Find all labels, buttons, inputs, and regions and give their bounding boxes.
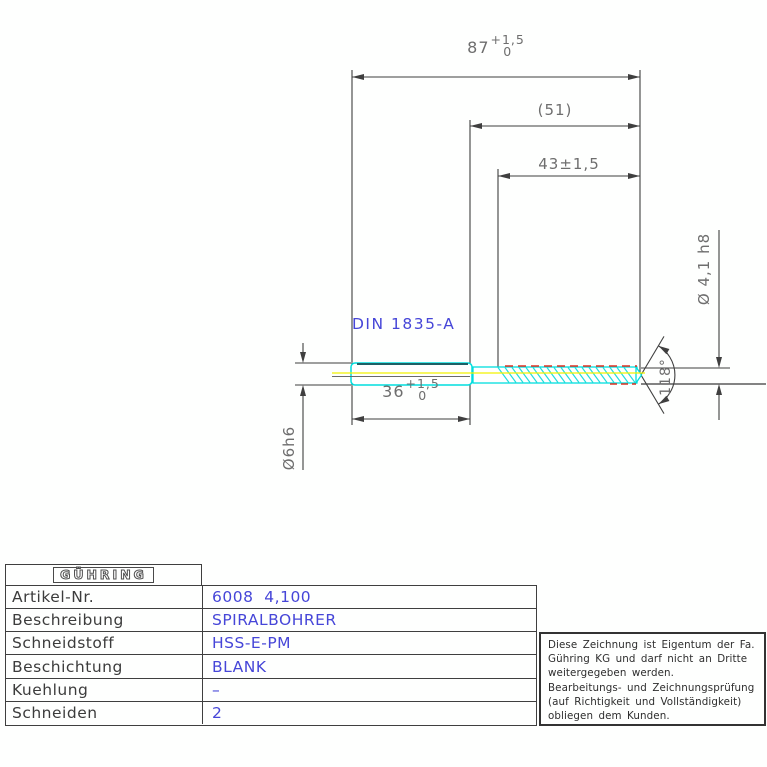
notice-line: Diese Zeichnung ist Eigentum der Fa. bbox=[548, 638, 757, 652]
notice-line: weitergegeben werden. bbox=[548, 666, 757, 680]
logo-cell: GÜHRING bbox=[5, 564, 202, 586]
table-row: Schneiden 2 bbox=[6, 702, 536, 724]
table-row: Artikel-Nr. 6008 4,100 bbox=[6, 586, 536, 609]
flute-hatch bbox=[498, 368, 635, 383]
dim-overall-value: 87 bbox=[467, 38, 489, 58]
dim-shank-value: 36 bbox=[382, 382, 404, 402]
row-value-kuehlung: – bbox=[203, 681, 536, 699]
titleblock-table: Artikel-Nr. 6008 4,100 Beschreibung SPIR… bbox=[5, 585, 537, 726]
dim-shank-diameter: Ø6h6 bbox=[280, 423, 298, 473]
table-row: Kuehlung – bbox=[6, 679, 536, 702]
logo-frame: GÜHRING bbox=[53, 567, 154, 583]
table-row: Beschreibung SPIRALBOHRER bbox=[6, 609, 536, 632]
notice-line: (auf Richtigkeit und Vollständigkeit) bbox=[548, 695, 757, 709]
table-row: Beschichtung BLANK bbox=[6, 655, 536, 678]
dim-point-angle: 118° bbox=[658, 357, 674, 397]
notice-line: Bearbeitungs- und Zeichnungsprüfung bbox=[548, 681, 757, 695]
row-label-schneidstoff: Schneidstoff bbox=[6, 632, 203, 654]
row-value-artikel: 6008 4,100 bbox=[203, 588, 536, 606]
cad-drawing-page: 87 +1,5 0 (51) 43±1,5 36 +1,5 0 DIN 1835… bbox=[0, 0, 767, 767]
dim-ref-length: (51) bbox=[470, 101, 640, 119]
ownership-notice: Diese Zeichnung ist Eigentum der Fa. Güh… bbox=[539, 632, 766, 726]
table-row: Schneidstoff HSS-E-PM bbox=[6, 632, 536, 655]
row-label-beschichtung: Beschichtung bbox=[6, 655, 203, 677]
shank-standard-label: DIN 1835-A bbox=[352, 315, 455, 333]
dim-overall-length: 87 +1,5 0 bbox=[352, 38, 640, 58]
dim-shank-tolerance: +1,5 0 bbox=[406, 378, 440, 401]
notice-line: Gühring KG und darf nicht an Dritte bbox=[548, 652, 757, 666]
drill-flute-outline bbox=[473, 367, 637, 383]
dim-overall-tolerance: +1,5 0 bbox=[491, 34, 525, 57]
row-value-beschichtung: BLANK bbox=[203, 658, 536, 676]
dim-flute-length: 43±1,5 bbox=[498, 155, 640, 173]
dim-drill-diameter: Ø 4,1 h8 bbox=[695, 229, 713, 309]
drill-tip bbox=[636, 367, 642, 383]
row-label-schneiden: Schneiden bbox=[6, 702, 203, 724]
row-label-beschreibung: Beschreibung bbox=[6, 609, 203, 631]
notice-line: obliegen dem Kunden. bbox=[548, 709, 757, 723]
dim-shank-length: 36 +1,5 0 bbox=[352, 382, 470, 402]
row-value-schneiden: 2 bbox=[203, 704, 536, 722]
row-value-schneidstoff: HSS-E-PM bbox=[203, 634, 536, 652]
row-label-artikel: Artikel-Nr. bbox=[6, 586, 203, 608]
row-label-kuehlung: Kuehlung bbox=[6, 679, 203, 701]
guehring-logo: GÜHRING bbox=[60, 569, 147, 581]
row-value-beschreibung: SPIRALBOHRER bbox=[203, 611, 536, 629]
